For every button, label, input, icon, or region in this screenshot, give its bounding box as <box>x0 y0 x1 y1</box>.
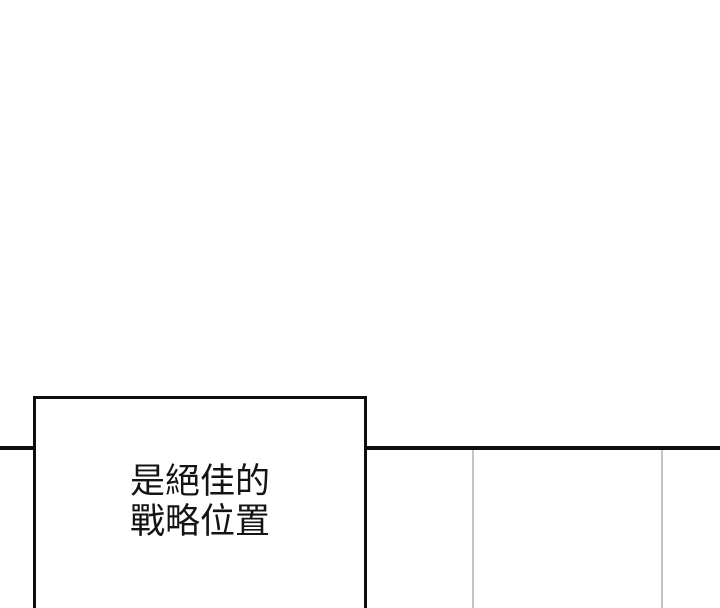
panel-guide-line-right <box>661 450 663 608</box>
speech-text: 是絕佳的 戰略位置 <box>36 462 364 542</box>
speech-text-line1: 是絕佳的 <box>36 462 364 502</box>
speech-text-line2: 戰略位置 <box>36 502 364 542</box>
comic-page: 是絕佳的 戰略位置 <box>0 0 720 608</box>
speech-box: 是絕佳的 戰略位置 <box>33 396 367 608</box>
panel-guide-line-left <box>472 450 474 608</box>
